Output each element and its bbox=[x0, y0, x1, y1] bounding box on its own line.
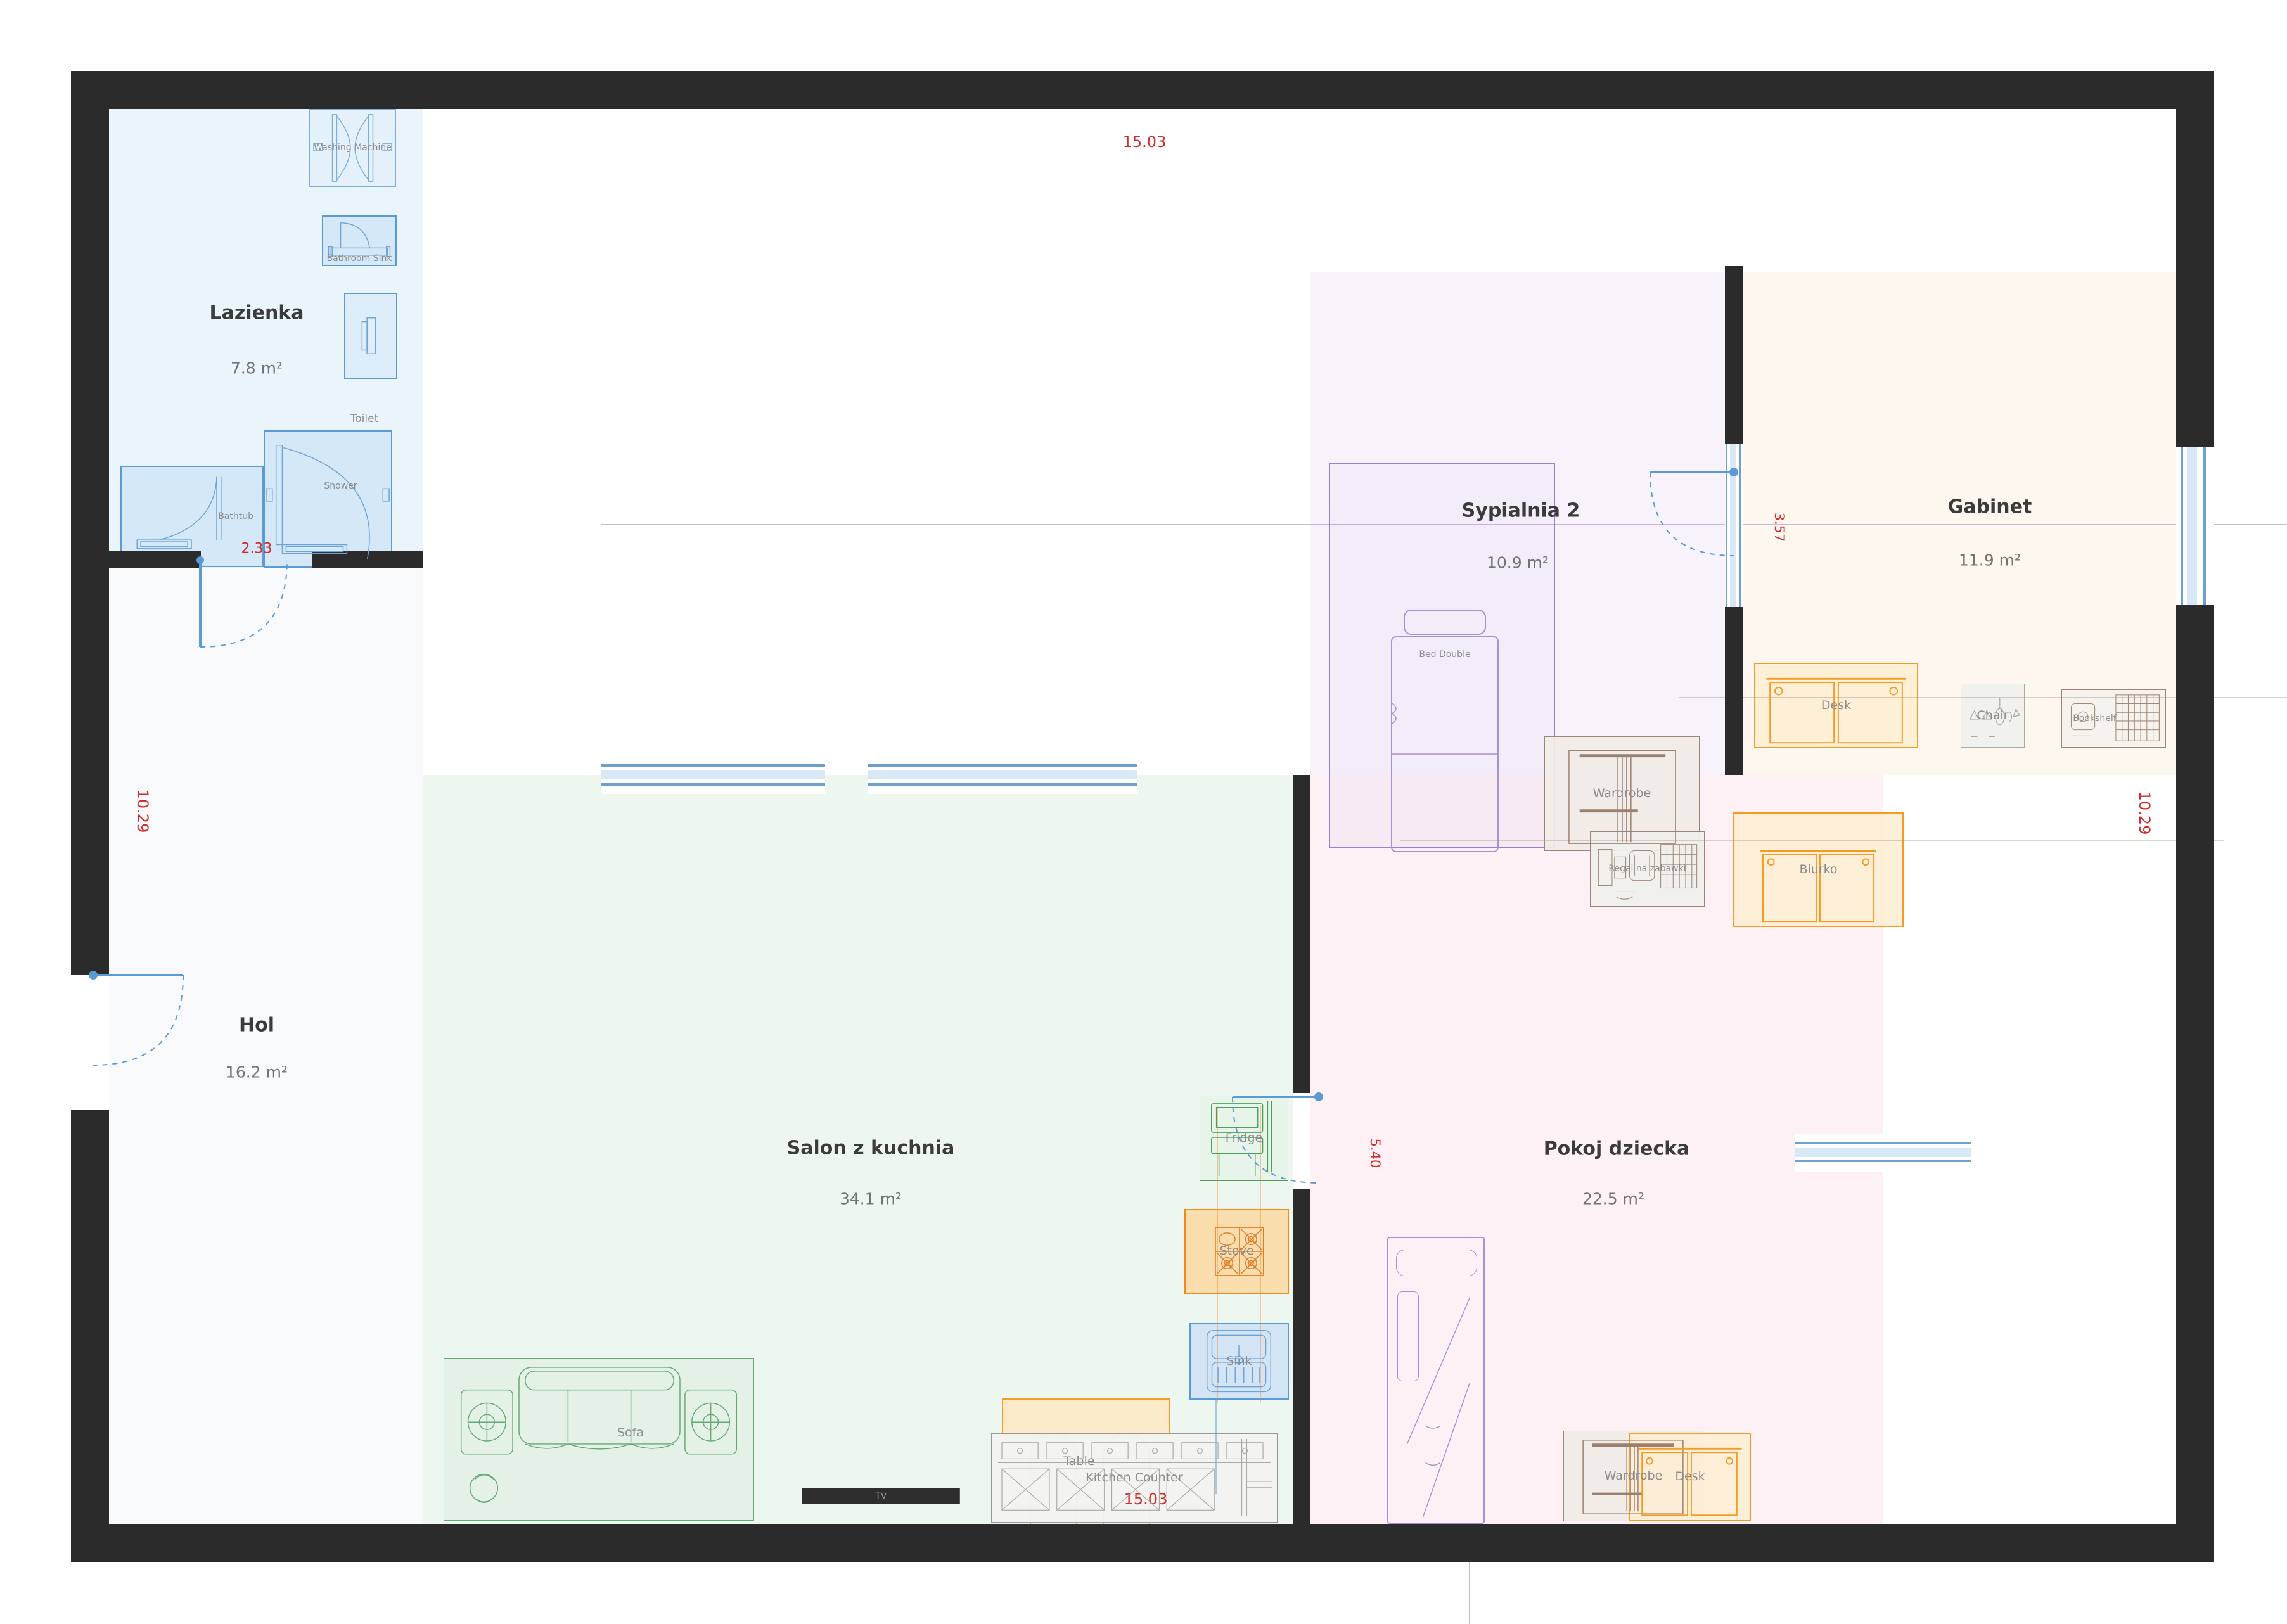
desk-kids-label: Desk bbox=[1675, 1471, 1705, 1483]
toilet[interactable] bbox=[344, 293, 397, 379]
title-lazienka: Lazienka bbox=[209, 302, 304, 324]
bathtub-label: Bathtub bbox=[218, 512, 262, 521]
door-bathroom[interactable] bbox=[196, 556, 287, 647]
shower[interactable]: Shower bbox=[264, 430, 392, 568]
title-salon: Salon z kuchnia bbox=[787, 1137, 955, 1160]
office-chair[interactable]: Chair bbox=[1961, 684, 2025, 748]
area-hol: 16.2 m² bbox=[226, 1063, 288, 1082]
bed-double[interactable]: Bed Double bbox=[1391, 608, 1499, 852]
biurko[interactable]: Biurko bbox=[1733, 812, 1904, 927]
door-bedroom[interactable] bbox=[1650, 468, 1738, 556]
title-hol: Hol bbox=[239, 1014, 274, 1037]
toilet-icon bbox=[345, 294, 396, 378]
bed-single-blanket-icon bbox=[1388, 1238, 1483, 1523]
stove[interactable]: Stove bbox=[1184, 1209, 1289, 1294]
fridge-label: Fridge bbox=[1226, 1132, 1262, 1145]
dim-bedroom-office: 3.57 bbox=[1772, 513, 1787, 542]
sofa-group[interactable]: Sofa bbox=[444, 1358, 754, 1521]
title-pokoj-dziecka: Pokoj dziecka bbox=[1544, 1138, 1690, 1160]
door-entry[interactable] bbox=[89, 971, 183, 1065]
shower-icon bbox=[265, 432, 391, 566]
bookshelf-label: Bookshelf bbox=[2073, 714, 2116, 724]
bathroom-sink[interactable]: Bathroom Sink bbox=[322, 215, 397, 266]
bathtub[interactable]: Bathtub bbox=[120, 466, 264, 567]
dim-height-left: 10.29 bbox=[134, 790, 151, 833]
bookshelf[interactable]: Bookshelf bbox=[2061, 689, 2166, 748]
washing-machine[interactable]: Washing Machine bbox=[309, 109, 396, 187]
kitchen-sink[interactable]: Sink bbox=[1189, 1323, 1289, 1400]
desk-office[interactable]: Desk bbox=[1754, 663, 1918, 748]
kitchen-counter-label: Kitchen Counter bbox=[1086, 1472, 1182, 1485]
area-gabinet: 11.9 m² bbox=[1959, 551, 2021, 570]
desk-office-label: Desk bbox=[1821, 700, 1851, 712]
dim-width-top: 15.03 bbox=[1123, 133, 1167, 151]
title-sypialnia2: Sypialnia 2 bbox=[1462, 500, 1580, 522]
dim-height-right: 10.29 bbox=[2136, 791, 2153, 835]
kitchen-sink-label: Sink bbox=[1226, 1355, 1252, 1368]
area-sypialnia2: 10.9 m² bbox=[1487, 554, 1549, 572]
stove-label: Stove bbox=[1219, 1245, 1253, 1258]
wardrobe-bedroom-label: Wardrobe bbox=[1593, 788, 1651, 800]
bed-double-label: Bed Double bbox=[1419, 650, 1470, 851]
dim-kitchen-kids: 5.40 bbox=[1368, 1139, 1383, 1168]
fridge[interactable]: Fridge bbox=[1200, 1096, 1288, 1181]
kitchen-counter[interactable]: Kitchen Counter bbox=[991, 1433, 1278, 1523]
biurko-label: Biurko bbox=[1799, 864, 1837, 876]
area-lazienka: 7.8 m² bbox=[231, 359, 283, 378]
sofa-label: Sofa bbox=[617, 1427, 644, 1440]
sofa-icon bbox=[444, 1359, 753, 1520]
tv-label: Tv bbox=[875, 1491, 887, 1501]
bathroom-sink-label: Bathroom Sink bbox=[327, 254, 392, 265]
toy-shelf-label: Regal na zabawki bbox=[1608, 864, 1686, 874]
area-salon: 34.1 m² bbox=[840, 1190, 902, 1208]
area-pokoj-dziecka: 22.5 m² bbox=[1582, 1190, 1644, 1208]
wardrobe-kids-label: Wardrobe bbox=[1605, 1470, 1663, 1483]
shower-label: Shower bbox=[324, 482, 357, 491]
floor-plan-canvas: Washing Machine Bathroom Sink Bathtub Sh… bbox=[0, 0, 2287, 1624]
office-chair-label: Chair bbox=[1976, 710, 2008, 722]
washing-machine-label: Washing Machine bbox=[314, 143, 391, 153]
toy-shelf[interactable]: Regal na zabawki bbox=[1590, 831, 1705, 907]
toilet-label: Toilet bbox=[350, 412, 378, 425]
title-gabinet: Gabinet bbox=[1948, 496, 2032, 518]
bed-single[interactable] bbox=[1387, 1237, 1485, 1524]
